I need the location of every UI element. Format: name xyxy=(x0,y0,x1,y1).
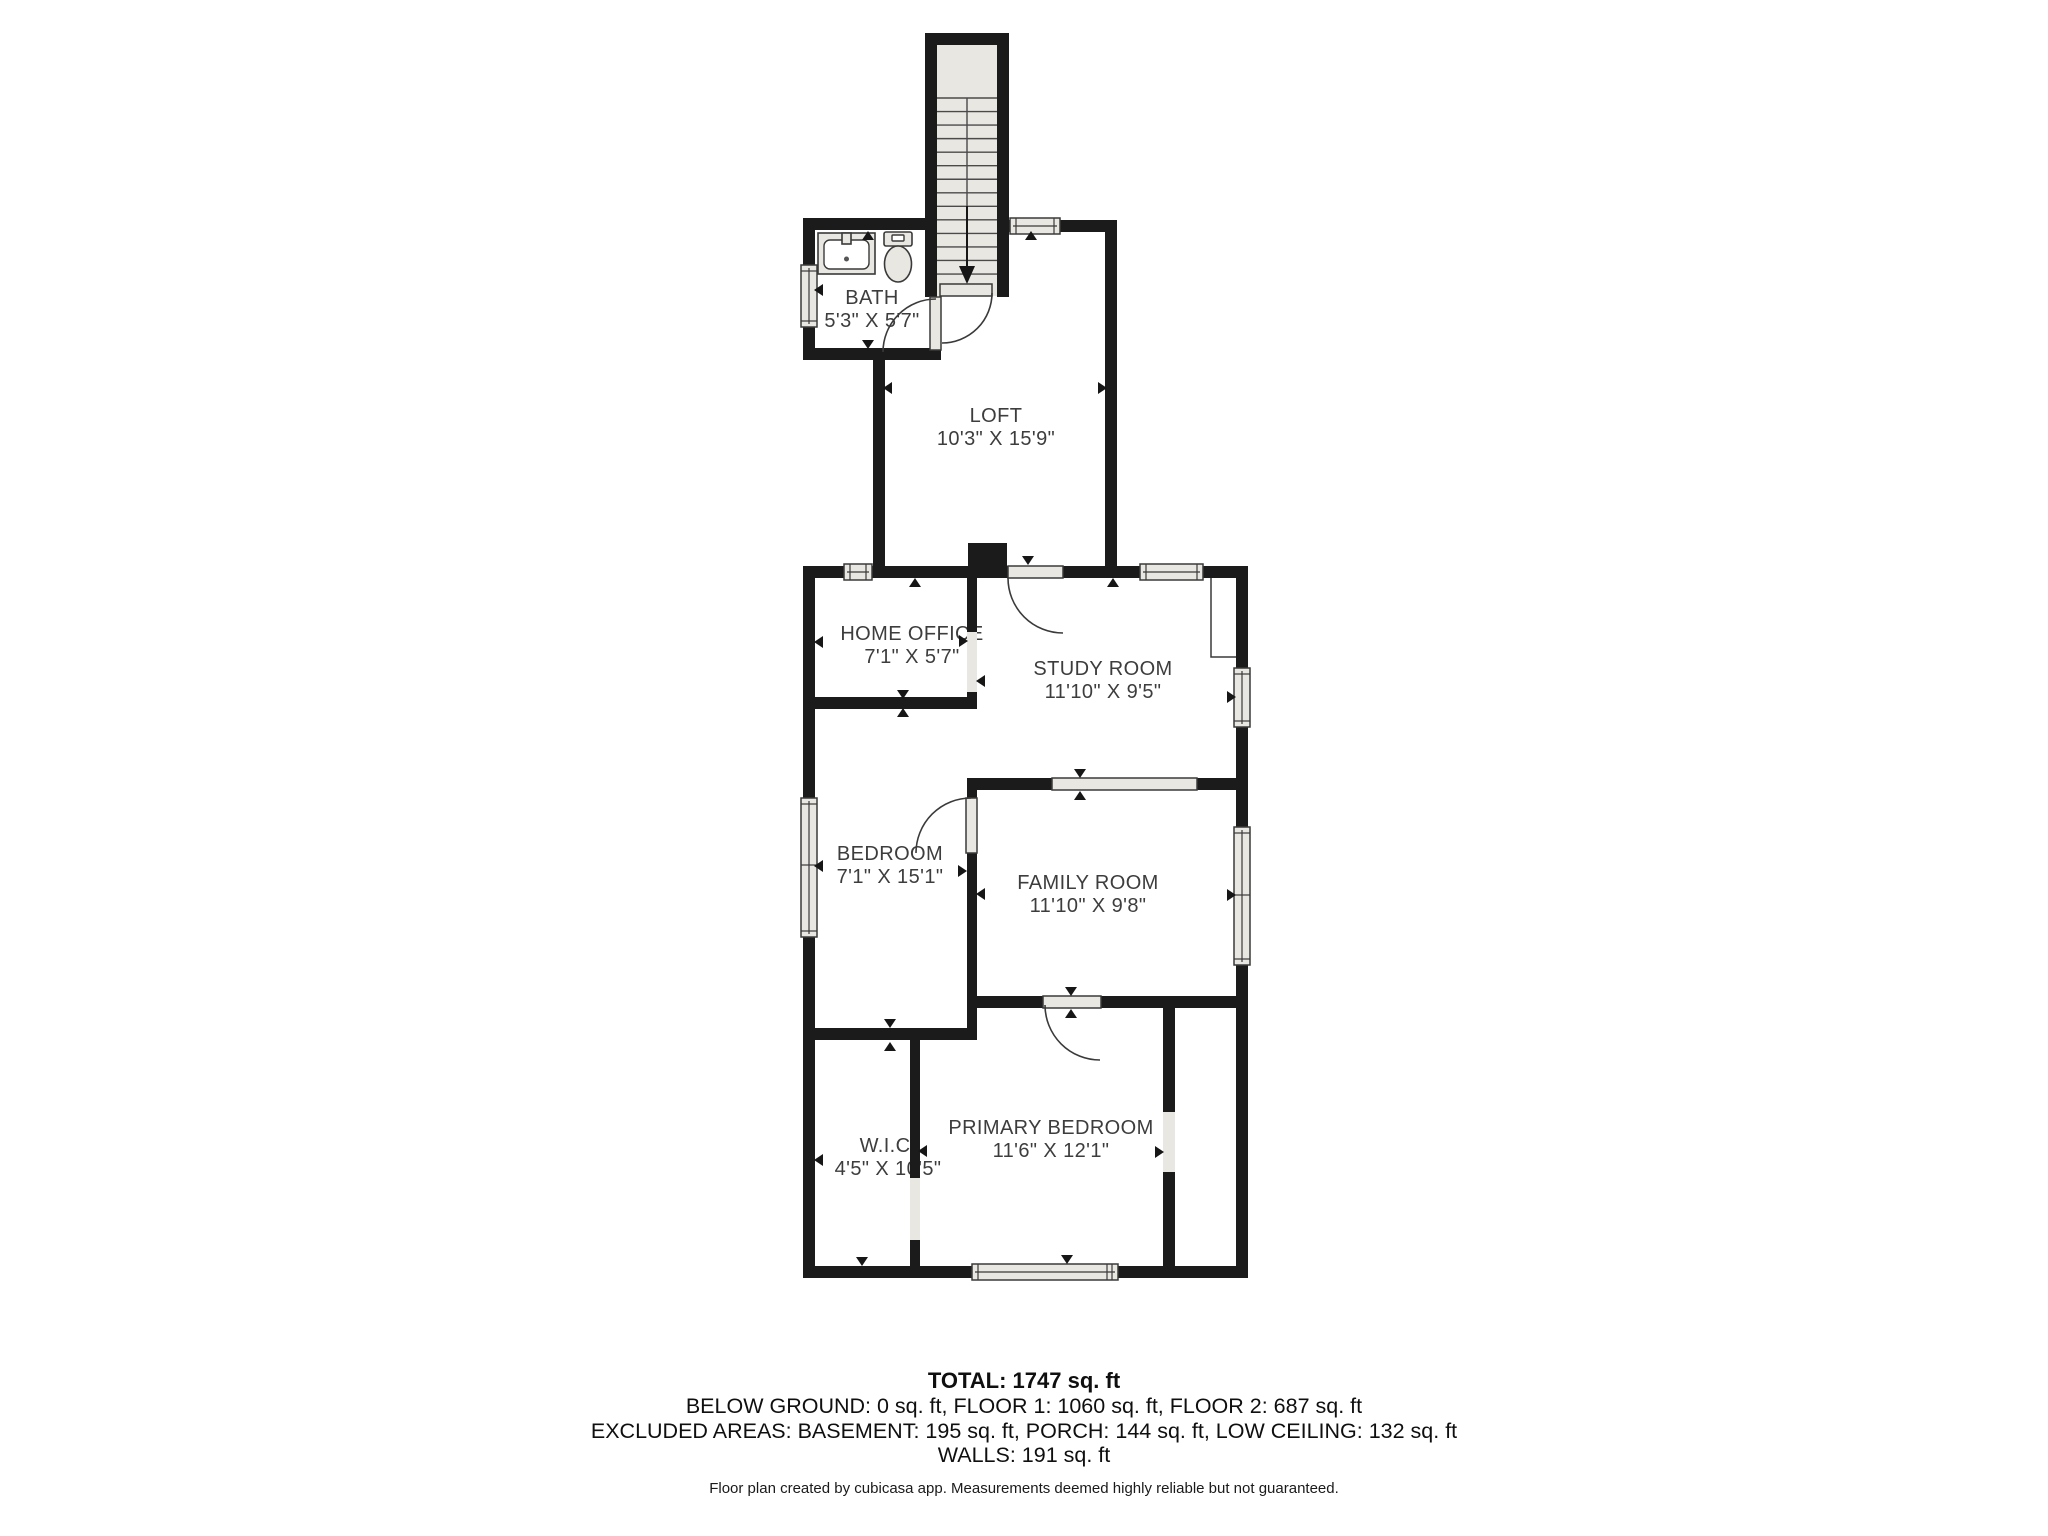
walls-area-text: WALLS: 191 sq. ft xyxy=(0,1443,2048,1468)
room-dims-bedroom: 7'1" X 15'1" xyxy=(837,866,944,888)
app-credit-text: Floor plan created by cubicasa app. Meas… xyxy=(0,1480,2048,1497)
excluded-areas-text: EXCLUDED AREAS: BASEMENT: 195 sq. ft, PO… xyxy=(0,1419,2048,1444)
total-area-text: TOTAL: 1747 sq. ft xyxy=(0,1368,2048,1394)
room-label-family-room: FAMILY ROOM xyxy=(1017,872,1158,894)
floor-areas-text: BELOW GROUND: 0 sq. ft, FLOOR 1: 1060 sq… xyxy=(0,1394,2048,1419)
room-dims-primary-bedroom: 11'6" X 12'1" xyxy=(993,1140,1110,1162)
room-label-bedroom: BEDROOM xyxy=(837,843,943,865)
room-label-wic: W.I.C. xyxy=(860,1135,917,1157)
staircase xyxy=(937,45,997,296)
toilet-icon xyxy=(884,232,912,282)
bath-door xyxy=(930,297,941,350)
room-label-primary-bedroom: PRIMARY BEDROOM xyxy=(948,1117,1153,1139)
study-wall-niche xyxy=(1211,578,1236,657)
study-family-opening xyxy=(1052,778,1197,790)
floor-plan-page: BATH 5'3" X 5'7" LOFT 10'3" X 15'9" HOME… xyxy=(0,0,2048,1536)
stair-door xyxy=(940,284,992,296)
room-dims-home-office: 7'1" X 5'7" xyxy=(864,646,959,668)
room-dims-wic: 4'5" X 10'5" xyxy=(835,1158,942,1180)
study-room-door xyxy=(1008,566,1063,578)
room-dims-loft: 10'3" X 15'9" xyxy=(937,428,1055,450)
room-label-loft: LOFT xyxy=(970,405,1023,427)
room-dims-study-room: 11'10" X 9'5" xyxy=(1045,681,1162,703)
room-label-bath: BATH xyxy=(845,287,898,309)
room-dims-bath: 5'3" X 5'7" xyxy=(824,310,919,332)
room-dims-family-room: 11'10" X 9'8" xyxy=(1030,895,1147,917)
primary-bedroom-door xyxy=(1043,996,1101,1008)
bedroom-door xyxy=(966,798,977,853)
floor-plan-canvas: BATH 5'3" X 5'7" LOFT 10'3" X 15'9" HOME… xyxy=(0,0,2048,1536)
room-label-study-room: STUDY ROOM xyxy=(1033,658,1172,680)
